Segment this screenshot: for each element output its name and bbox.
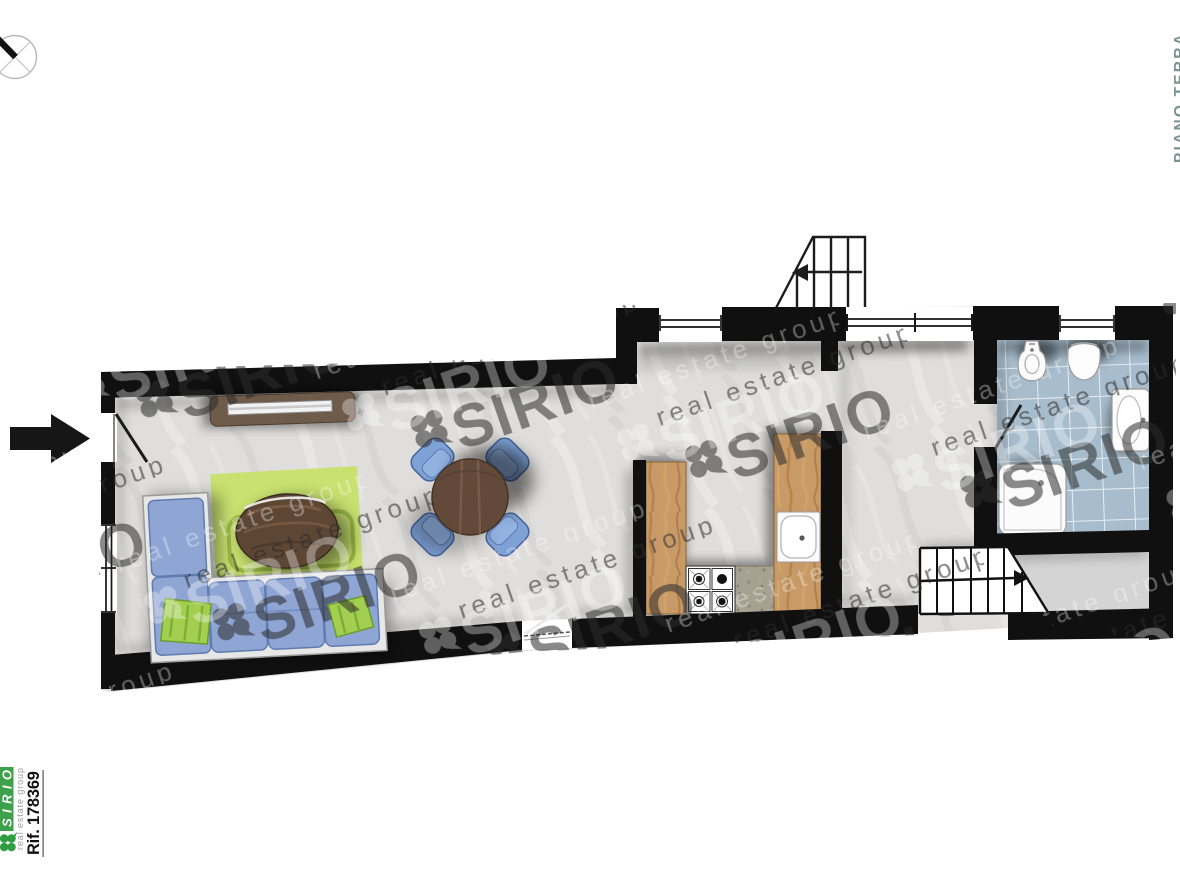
svg-text:real estate group: real estate group xyxy=(15,768,25,850)
svg-text:SIRIO: SIRIO xyxy=(0,770,15,827)
svg-text:Rif. 178369: Rif. 178369 xyxy=(25,771,43,855)
svg-text:PIANO TERRA: PIANO TERRA xyxy=(1172,32,1180,163)
